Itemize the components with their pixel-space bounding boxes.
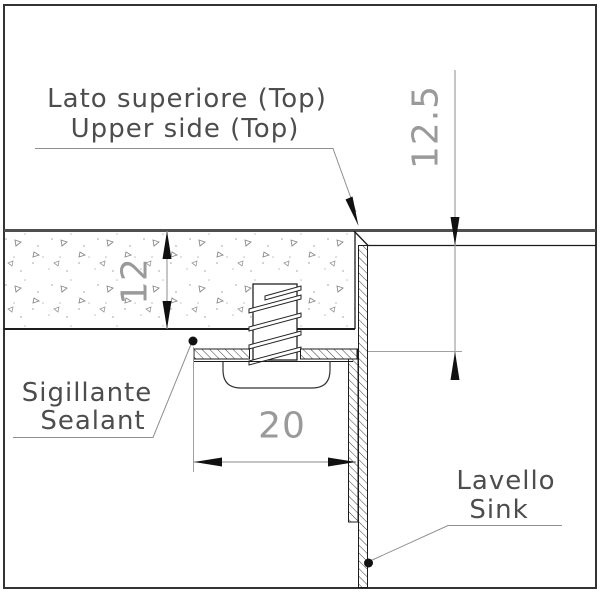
leader-top-side xyxy=(35,149,359,227)
fixing-screw xyxy=(249,284,301,365)
cad-drawing-canvas: Lato superiore (Top) Upper side (Top) Si… xyxy=(0,0,600,600)
leader-sink xyxy=(364,526,562,568)
sink-wall xyxy=(359,246,368,588)
clamp-nut-profile xyxy=(223,362,330,389)
sink-edge-return xyxy=(349,349,359,522)
